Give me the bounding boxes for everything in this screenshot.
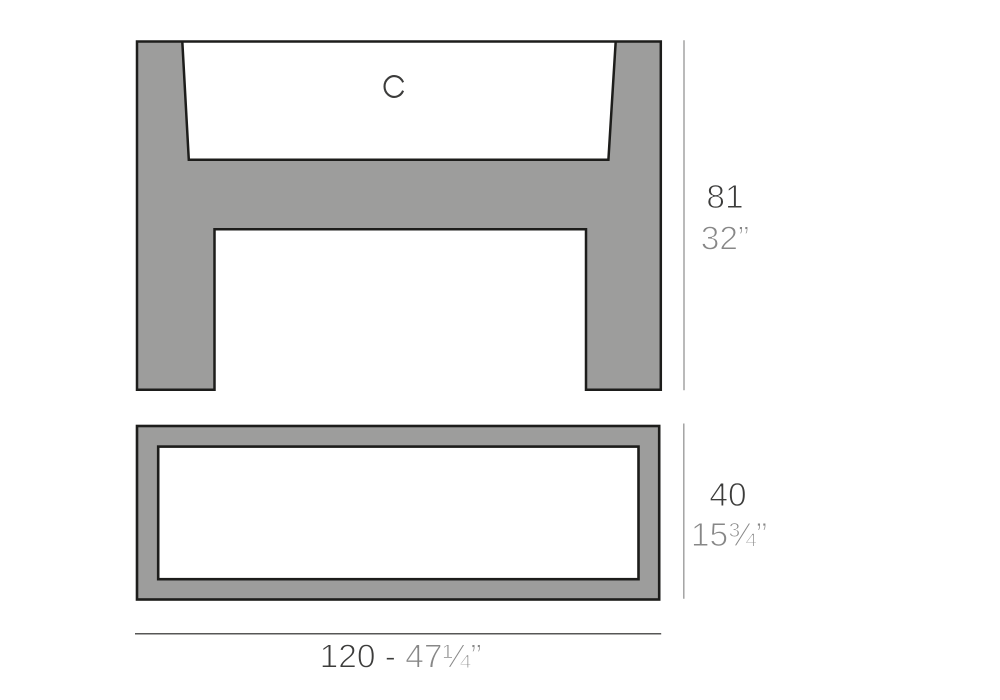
svg-text:32”: 32” xyxy=(701,221,749,258)
svg-text:15¾”: 15¾” xyxy=(691,517,767,554)
svg-text:81: 81 xyxy=(706,179,743,216)
svg-text:120 - 47¼”: 120 - 47¼” xyxy=(320,639,482,676)
svg-text:40: 40 xyxy=(709,477,746,514)
